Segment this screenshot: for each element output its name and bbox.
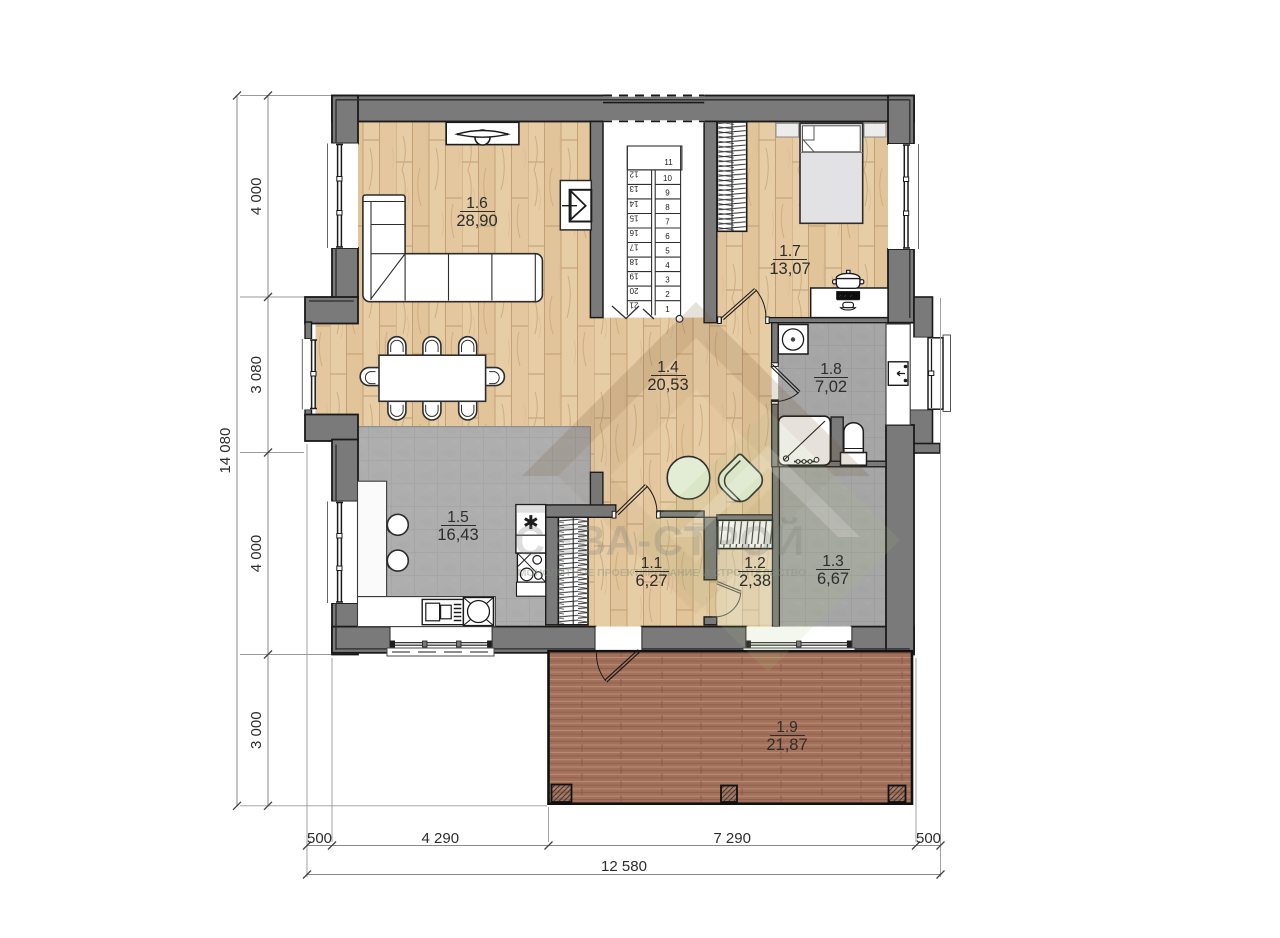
svg-text:10: 10 [663,174,672,183]
svg-text:6,27: 6,27 [635,572,667,590]
svg-text:5: 5 [665,247,670,256]
svg-text:16,43: 16,43 [437,526,478,544]
svg-text:2,38: 2,38 [739,572,771,590]
svg-text:21,87: 21,87 [766,736,807,754]
svg-text:20: 20 [629,286,638,295]
svg-text:16: 16 [629,228,638,237]
svg-text:12: 12 [629,170,638,179]
svg-text:20,53: 20,53 [647,376,688,394]
svg-text:21: 21 [629,300,638,309]
svg-text:1.9: 1.9 [776,719,798,736]
svg-text:3 000: 3 000 [248,711,265,749]
svg-text:1.8: 1.8 [820,361,842,378]
svg-text:4: 4 [665,261,670,270]
svg-text:1.2: 1.2 [744,555,766,572]
svg-text:3: 3 [665,276,670,285]
svg-text:1.7: 1.7 [779,243,801,260]
svg-text:12 580: 12 580 [601,858,647,875]
svg-text:9: 9 [665,189,670,198]
svg-text:28,90: 28,90 [456,212,497,230]
svg-text:13: 13 [629,184,638,193]
svg-text:7,02: 7,02 [815,378,847,396]
svg-text:15: 15 [629,213,638,222]
svg-text:1.1: 1.1 [641,555,663,572]
svg-text:7 290: 7 290 [713,830,751,847]
svg-text:4 000: 4 000 [248,178,265,216]
svg-text:3 080: 3 080 [248,356,265,394]
svg-text:14: 14 [629,199,638,208]
svg-text:1: 1 [665,305,670,314]
svg-text:500: 500 [307,830,332,847]
svg-text:11: 11 [664,158,673,167]
svg-text:4 290: 4 290 [422,830,460,847]
svg-text:1.4: 1.4 [657,359,679,376]
svg-text:19: 19 [629,271,638,280]
svg-text:1.3: 1.3 [822,553,844,570]
svg-text:14 080: 14 080 [217,428,234,474]
svg-text:18: 18 [629,257,638,266]
svg-text:6,67: 6,67 [817,570,849,588]
svg-text:500: 500 [916,830,941,847]
svg-text:8: 8 [665,203,670,212]
svg-text:4 000: 4 000 [248,535,265,573]
svg-text:1.5: 1.5 [447,509,469,526]
svg-text:1.6: 1.6 [466,195,488,212]
svg-text:7: 7 [665,218,670,227]
svg-text:17: 17 [629,242,638,251]
svg-text:13,07: 13,07 [769,260,810,278]
svg-text:6: 6 [665,232,670,241]
svg-text:2: 2 [665,290,670,299]
